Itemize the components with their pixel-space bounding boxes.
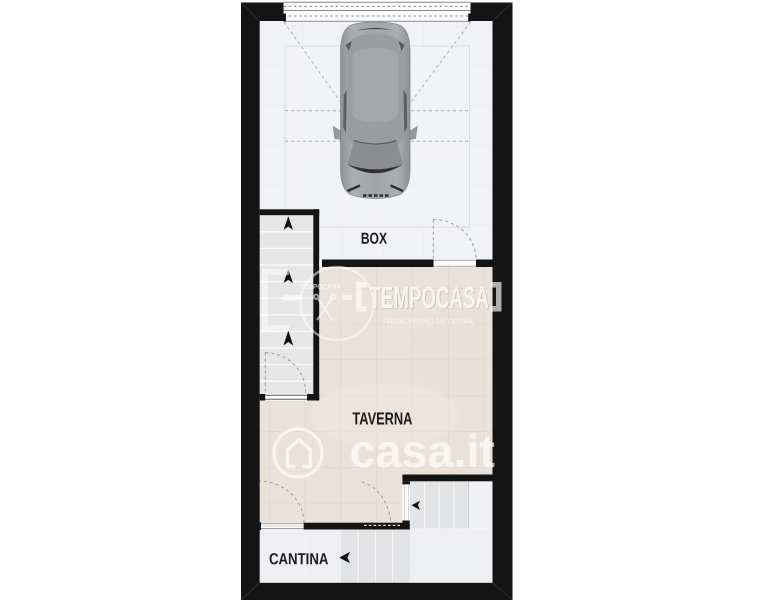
svg-text:CANTINA: CANTINA: [269, 551, 329, 568]
svg-text:TEMPOCASA: TEMPOCASA: [299, 282, 342, 291]
svg-text:casa.it: casa.it: [350, 425, 496, 477]
svg-text:FRANCHISING NETWORK: FRANCHISING NETWORK: [383, 317, 475, 326]
svg-text:TEMPOCASA: TEMPOCASA: [370, 280, 490, 315]
svg-text:BOX: BOX: [361, 231, 387, 248]
